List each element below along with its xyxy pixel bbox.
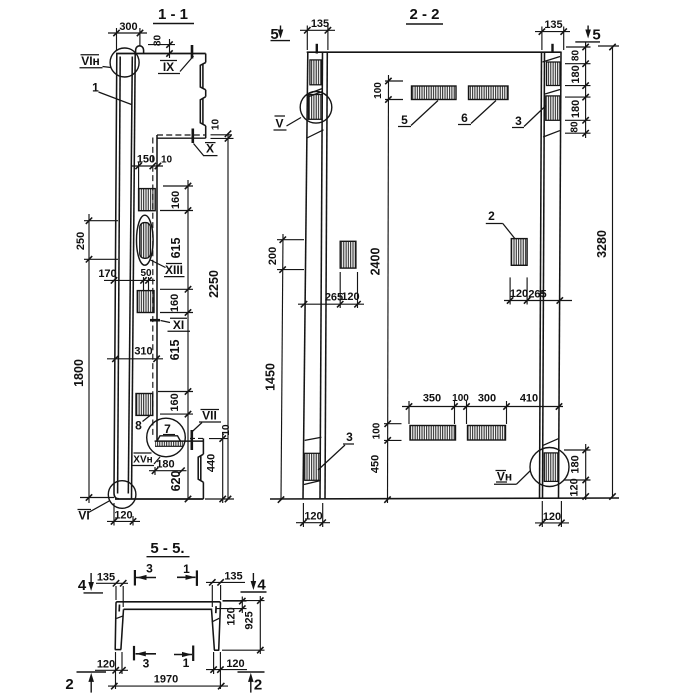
svg-text:180: 180 [570,100,582,118]
svg-text:350: 350 [423,393,441,405]
svg-text:VIн: VIн [81,54,100,68]
svg-text:80: 80 [153,35,164,47]
svg-text:50: 50 [140,268,152,279]
svg-text:4: 4 [257,577,266,594]
svg-text:3280: 3280 [595,230,609,258]
svg-text:3: 3 [143,657,150,671]
svg-text:2 - 2: 2 - 2 [409,6,439,23]
svg-text:135: 135 [97,572,115,584]
svg-text:1450: 1450 [264,363,278,391]
svg-text:120: 120 [97,659,115,671]
svg-text:180: 180 [156,459,174,471]
svg-text:120: 120 [226,658,244,670]
svg-text:150: 150 [137,154,155,166]
svg-text:310: 310 [134,346,152,358]
svg-text:300: 300 [119,21,137,33]
svg-text:410: 410 [520,393,538,405]
svg-text:100: 100 [372,422,383,439]
svg-text:2400: 2400 [369,248,383,276]
svg-text:2: 2 [488,209,495,223]
svg-text:V: V [275,117,283,131]
svg-text:120: 120 [543,511,561,523]
svg-text:4: 4 [78,577,87,594]
svg-text:120: 120 [510,288,528,300]
svg-text:135: 135 [311,18,329,30]
svg-text:6: 6 [461,111,468,125]
svg-text:120: 120 [341,291,359,303]
svg-text:1970: 1970 [154,674,178,686]
svg-text:2250: 2250 [207,270,221,298]
svg-text:10: 10 [221,424,232,436]
svg-text:450: 450 [370,455,382,473]
svg-text:2: 2 [254,677,262,694]
svg-text:1: 1 [183,562,190,576]
svg-text:1800: 1800 [72,359,86,387]
svg-text:3: 3 [146,562,153,576]
svg-text:80: 80 [570,121,581,133]
svg-text:8: 8 [135,419,142,433]
svg-text:925: 925 [244,611,256,629]
svg-text:7: 7 [164,422,171,436]
svg-text:180: 180 [570,65,582,83]
svg-text:IX: IX [163,60,174,74]
svg-text:VI: VI [78,509,89,523]
svg-text:250: 250 [75,232,87,250]
svg-text:80: 80 [571,50,582,62]
svg-text:5: 5 [401,113,408,127]
svg-text:120: 120 [569,478,581,496]
svg-text:300: 300 [478,393,496,405]
svg-text:265: 265 [528,289,546,301]
svg-text:3: 3 [515,114,522,128]
svg-text:100: 100 [373,82,384,99]
svg-text:615: 615 [169,238,183,259]
svg-text:XVн: XVн [133,455,152,466]
svg-text:160: 160 [169,294,181,312]
svg-text:620: 620 [169,471,183,492]
svg-text:5 - 5.: 5 - 5. [150,540,184,557]
svg-text:1: 1 [92,81,99,95]
svg-text:120: 120 [304,511,322,523]
svg-text:120: 120 [114,510,132,522]
svg-text:3: 3 [346,430,353,444]
svg-text:100: 100 [452,393,469,404]
svg-text:X: X [206,142,214,156]
svg-text:180: 180 [570,455,582,473]
svg-text:170: 170 [98,268,116,280]
svg-text:120: 120 [226,607,238,625]
svg-text:2: 2 [65,676,73,693]
svg-text:135: 135 [544,19,562,31]
svg-text:160: 160 [169,393,181,411]
svg-text:10: 10 [211,119,222,131]
svg-text:135: 135 [224,571,242,583]
svg-text:160: 160 [170,191,182,209]
svg-text:XI: XI [173,318,184,332]
svg-text:VII: VII [202,409,217,423]
svg-text:200: 200 [267,247,279,265]
svg-text:5: 5 [592,27,600,44]
svg-text:XIII: XIII [165,263,183,277]
svg-text:10: 10 [161,155,173,166]
svg-text:440: 440 [206,454,218,472]
svg-text:615: 615 [168,340,182,361]
svg-text:1 - 1: 1 - 1 [158,6,188,23]
svg-text:1: 1 [183,656,190,670]
